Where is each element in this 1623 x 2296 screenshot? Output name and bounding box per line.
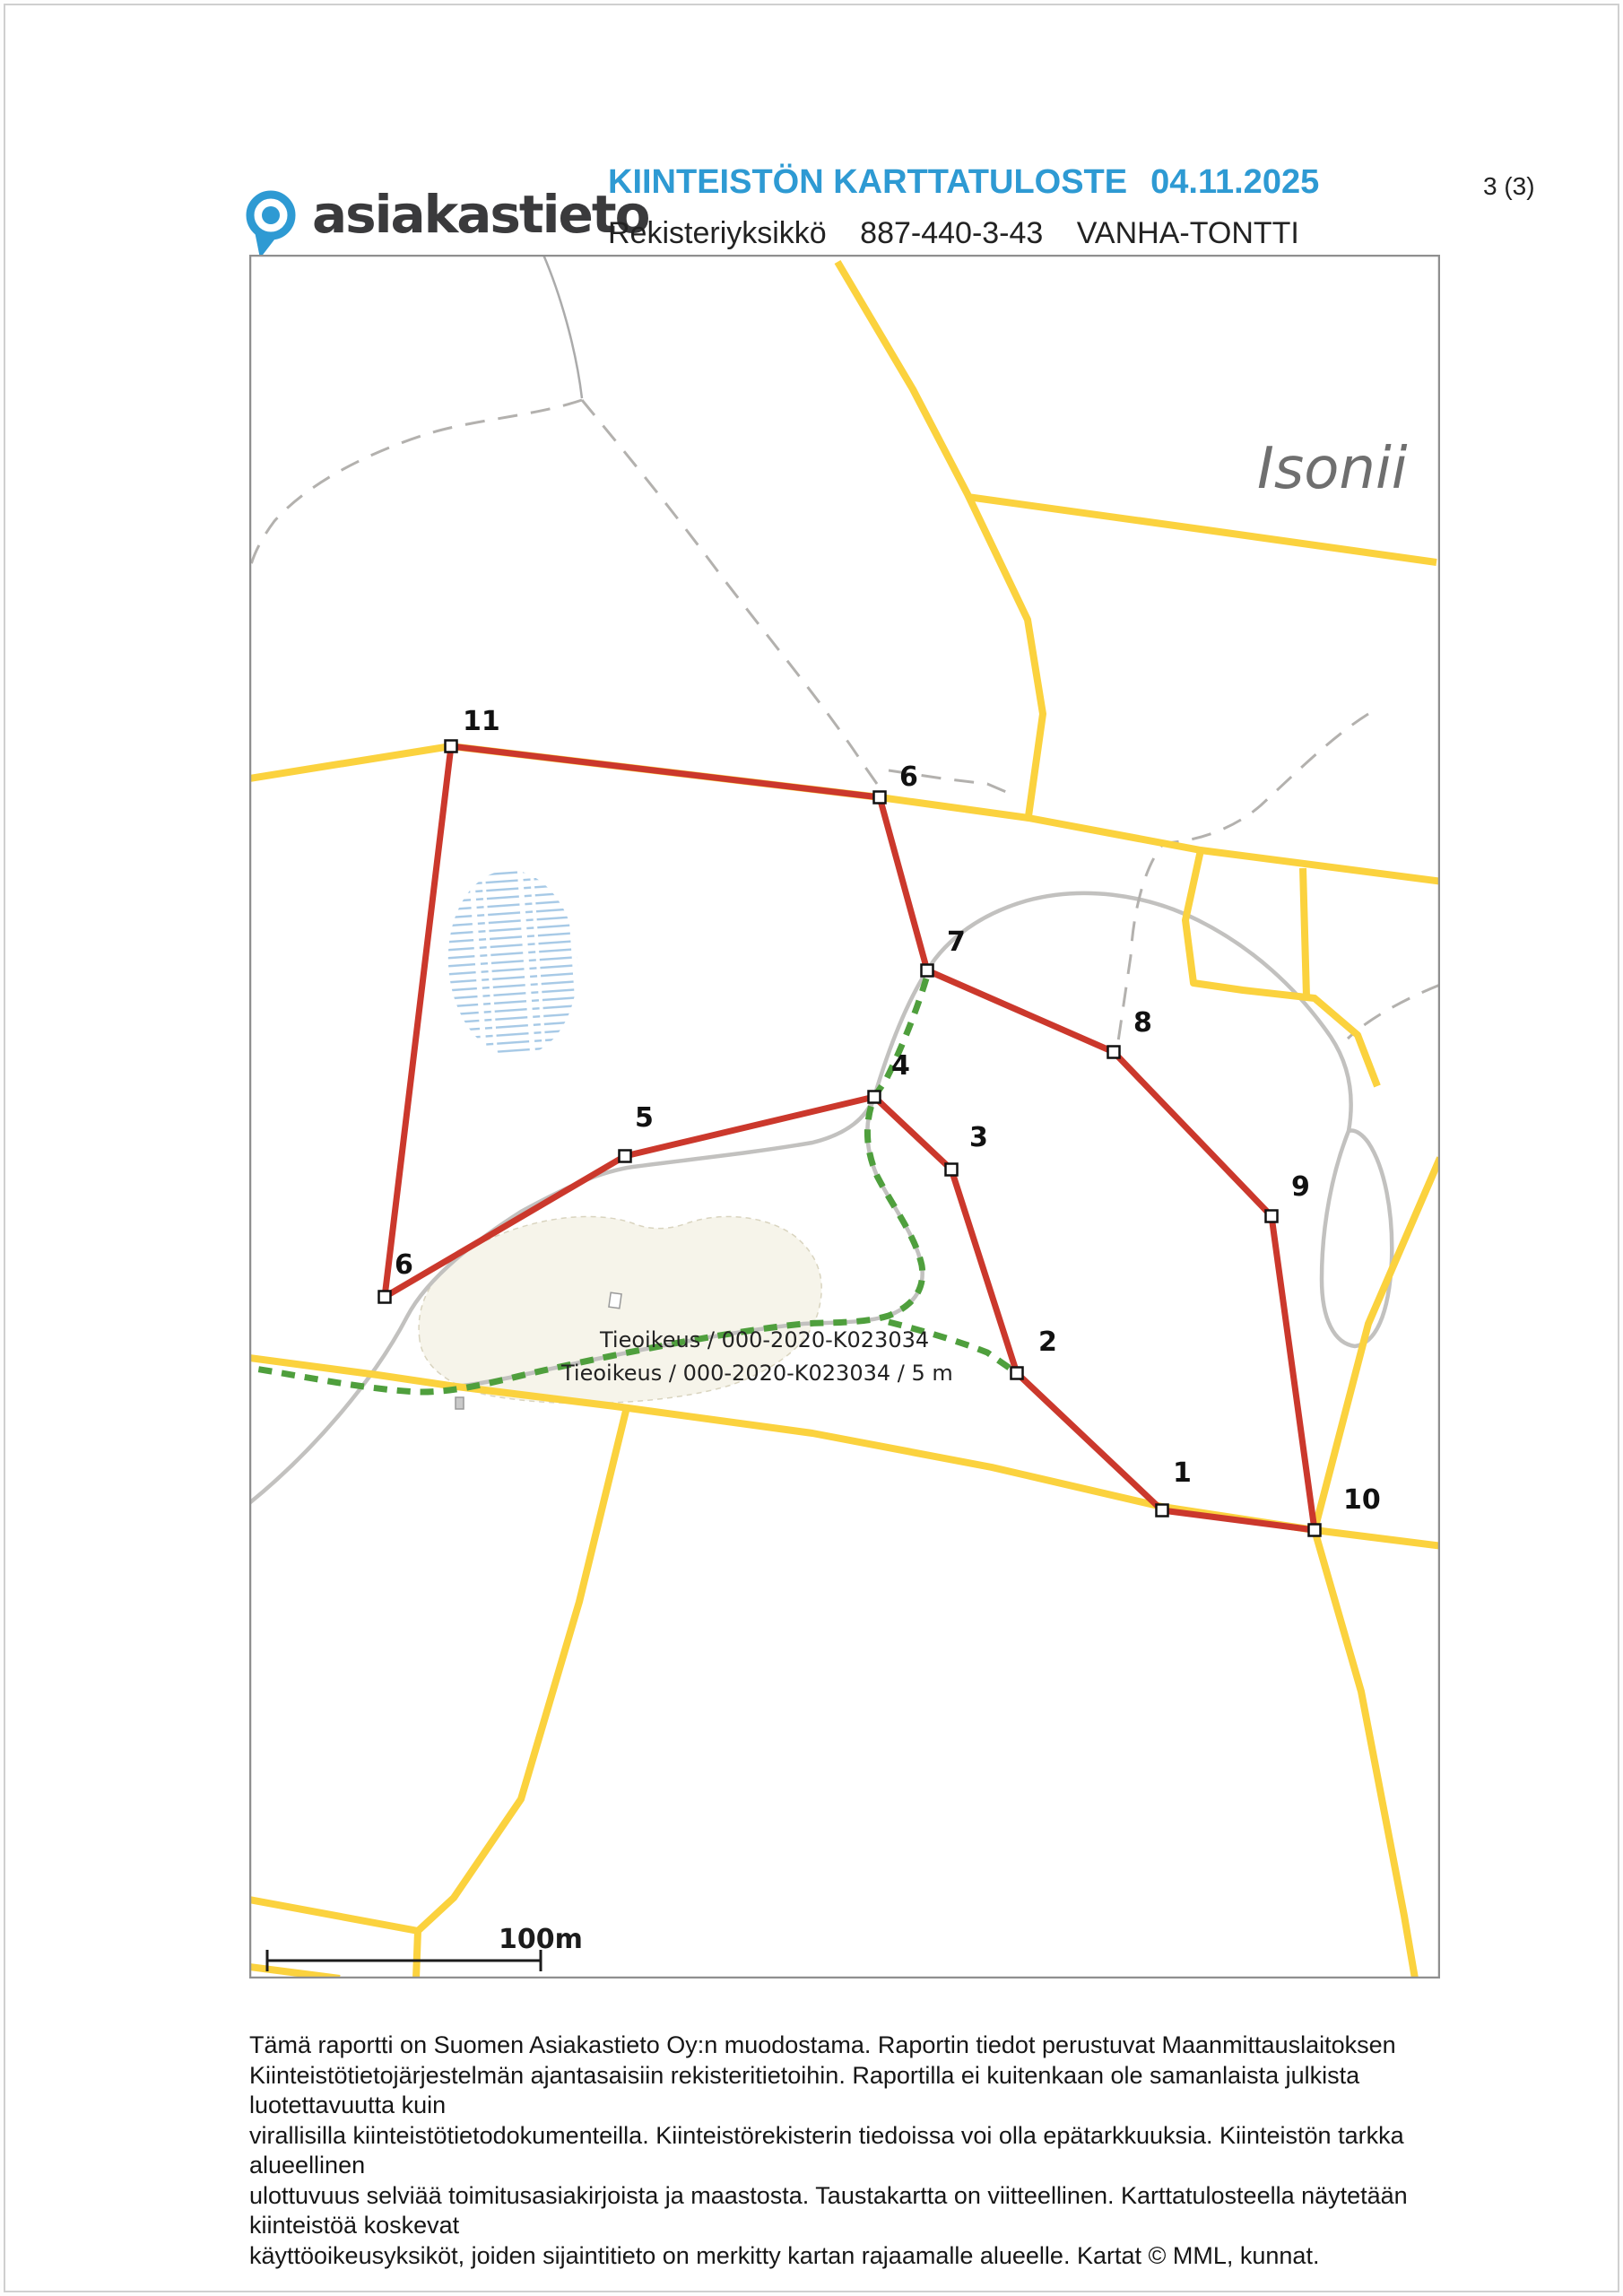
road-yellow-main (249, 746, 1440, 882)
road-yellow-diagonal (1315, 1158, 1440, 1979)
road-yellow-bottomleft (249, 1900, 418, 1931)
disclaimer-line: virallisilla kiinteistötietodokumenteill… (249, 2121, 1451, 2181)
scanned-page: asiakastieto KIINTEISTÖN KARTTATULOSTE04… (4, 4, 1619, 2292)
road-yellow-southwest-branch (416, 1407, 627, 1979)
boundary-marker-6-west (379, 1291, 391, 1303)
road-yellow-northeast (968, 497, 1436, 562)
swamp-symbol (442, 865, 584, 1061)
map-frame (250, 256, 1439, 1978)
boundary-marker-7 (922, 965, 933, 977)
disclaimer-text: Tämä raportti on Suomen Asiakastieto Oy:… (249, 2031, 1451, 2271)
document-header: KIINTEISTÖN KARTTATULOSTE04.11.2025 Reki… (608, 163, 1324, 251)
document-date: 04.11.2025 (1150, 163, 1319, 201)
disclaimer-line: Tämä raportti on Suomen Asiakastieto Oy:… (249, 2031, 1451, 2061)
map-canvas: 11 6 7 8 9 10 1 2 3 4 5 6 Tieoikeus / 00… (249, 255, 1440, 1979)
boundary-marker-1 (1157, 1505, 1168, 1517)
marker-label: 4 (891, 1050, 910, 1082)
marker-label: 9 (1291, 1171, 1310, 1203)
register-unit-line: Rekisteriyksikkö 887-440-3-43 VANHA-TONT… (608, 216, 1324, 251)
road-yellow-loop-leg (1303, 868, 1306, 996)
boundary-marker-4 (869, 1091, 881, 1103)
parcel-boundary-dashed-right (1348, 985, 1440, 1039)
register-unit-id: 887-440-3-43 (860, 216, 1043, 250)
gravel-road-main (249, 893, 1351, 1503)
stream-line (543, 255, 582, 398)
marker-label: 1 (1173, 1457, 1192, 1489)
marker-label: 7 (947, 926, 966, 958)
road-yellow-south (249, 1358, 1440, 1546)
boundary-marker-9 (1266, 1211, 1278, 1222)
building (456, 1397, 464, 1409)
parcel-boundary-dashed-east (1117, 714, 1368, 1048)
cadastral-map: 11 6 7 8 9 10 1 2 3 4 5 6 Tieoikeus / 00… (249, 255, 1440, 1979)
marker-label: 6 (899, 761, 918, 793)
marker-label: 8 (1133, 1007, 1152, 1039)
road-yellow-loop (1185, 850, 1377, 1086)
marker-label: 6 (395, 1249, 413, 1281)
easement-label-2: Tieoikeus / 000-2020-K023034 / 5 m (560, 1361, 953, 1386)
building (609, 1292, 621, 1309)
register-label: Rekisteriyksikkö (608, 216, 827, 250)
marker-label: 2 (1038, 1326, 1057, 1358)
marker-label: 3 (969, 1122, 988, 1153)
boundary-marker-10 (1309, 1525, 1321, 1536)
place-name-label: Isonii (1257, 436, 1408, 502)
boundary-marker-8 (1108, 1047, 1120, 1058)
boundary-marker-11 (446, 741, 457, 752)
marker-label: 11 (463, 706, 500, 737)
easement-label-1: Tieoikeus / 000-2020-K023034 (599, 1327, 929, 1352)
boundary-marker-6-north (874, 792, 886, 804)
property-name: VANHA-TONTTI (1077, 216, 1299, 250)
marker-label: 10 (1343, 1484, 1381, 1516)
road-loop-teardrop (1322, 1131, 1392, 1346)
logo-wordmark: asiakastieto (312, 184, 648, 245)
road-yellow-north-branch (838, 262, 1043, 816)
parcel-boundary-dashed-west (249, 400, 582, 572)
page-indicator: 3 (3) (1483, 172, 1535, 201)
boundary-marker-2 (1011, 1368, 1023, 1379)
scale-label: 100m (499, 1924, 583, 1955)
disclaimer-line: ulottuvuus selviää toimitusasiakirjoista… (249, 2181, 1451, 2241)
disclaimer-line: käyttöoikeusyksiköt, joiden sijaintitiet… (249, 2241, 1451, 2272)
boundary-marker-5 (620, 1151, 631, 1162)
document-title: KIINTEISTÖN KARTTATULOSTE04.11.2025 (608, 163, 1324, 202)
disclaimer-line: Kiinteistötietojärjestelmän ajantasaisii… (249, 2061, 1451, 2121)
title-text: KIINTEISTÖN KARTTATULOSTE (608, 163, 1127, 201)
parcel-boundary-dashed-center (582, 400, 877, 784)
marker-label: 5 (635, 1102, 654, 1134)
property-boundary (385, 746, 1315, 1530)
boundary-marker-3 (946, 1164, 958, 1176)
